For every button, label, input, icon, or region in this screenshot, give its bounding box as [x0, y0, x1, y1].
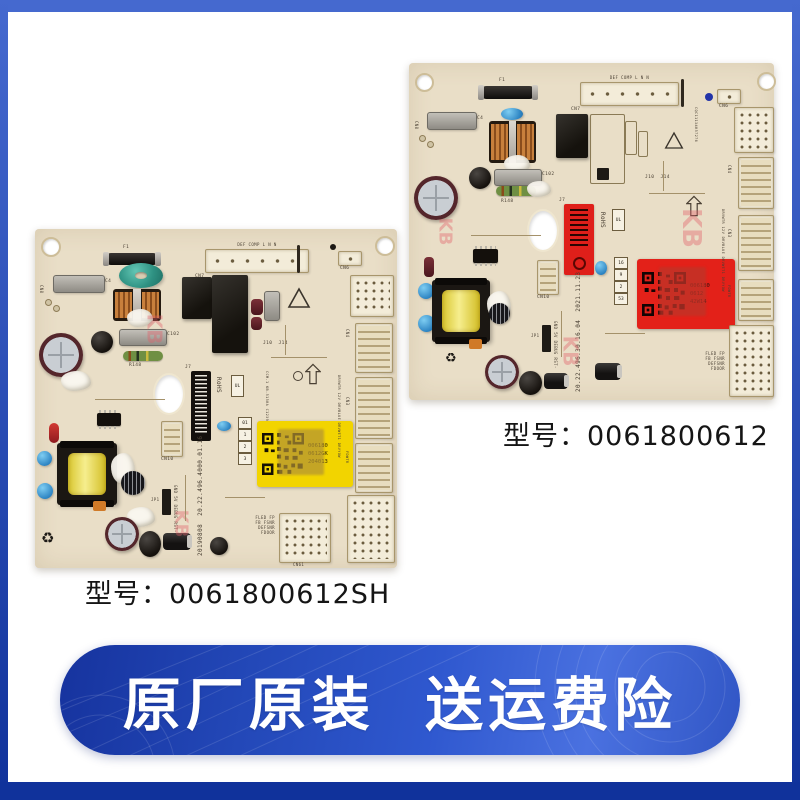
silkscreen-cn10: CN10 [161, 457, 173, 462]
silkscreen-jp1: JP1 [531, 333, 539, 338]
marking-box: 16 [614, 257, 628, 269]
marking-box: 1 [238, 429, 252, 441]
edge-connector [355, 443, 393, 493]
pcb-trace [185, 475, 186, 521]
silkscreen-r148: R148 [129, 363, 141, 368]
mounting-hole [41, 237, 61, 257]
diode [595, 363, 621, 380]
silkscreen-drv-labels: DRVWTR 12V DRVBLUE DRVWET1 DRVYOW [721, 209, 725, 273]
connector-pins [358, 446, 390, 490]
power-connector [580, 82, 679, 106]
mounting-hole [415, 73, 434, 92]
edge-connector [738, 157, 774, 209]
small-connector [338, 251, 362, 266]
component-outline [638, 131, 648, 157]
silkscreen-r148: R148 [501, 199, 513, 204]
silkscreen-debug: GND 5V DEBUG RST- [553, 321, 558, 361]
electrolytic-capacitor [489, 303, 510, 324]
pcb-trace [605, 333, 645, 334]
silkscreen-c102: C102 [542, 172, 554, 177]
model-caption-sh: 型号：0061800612SH [85, 572, 390, 611]
small-connector [717, 89, 741, 104]
silkscreen-c4: C4 [477, 116, 483, 121]
film-capacitor [264, 291, 280, 321]
silkscreen-top-pins: DEF COMP L N N [582, 75, 677, 80]
electrolytic-capacitor [121, 471, 145, 495]
capacitor [595, 261, 607, 275]
silkscreen-cn4: CN4 [727, 165, 732, 173]
connector-pins [585, 92, 674, 97]
power-resistor [123, 351, 163, 361]
display-connector [279, 513, 331, 563]
connector-pins [343, 256, 357, 261]
program-header [537, 260, 559, 295]
silkscreen-cn61: CN61 [293, 562, 304, 567]
film-capacitor [53, 275, 105, 293]
silkscreen-c4: C4 [105, 279, 111, 284]
varistor-dot [705, 93, 713, 101]
program-header [161, 421, 183, 457]
edge-connector [350, 275, 394, 317]
frame-bottom [0, 782, 800, 800]
ul-mark: UL [612, 209, 625, 231]
capacitor [210, 537, 228, 555]
banner-text: 原厂原装 送运费险 [60, 645, 740, 755]
silkscreen-drv-labels: DRVWTR 12V DRVBLUE DRVWET1 DRVYOW [337, 375, 341, 439]
transformer [57, 443, 117, 505]
warning-triangle-icon [664, 131, 684, 150]
connector-pins [738, 111, 770, 149]
pcb-trace [649, 193, 705, 194]
kb-watermark: KB [170, 510, 191, 538]
kb-watermark: KB [434, 218, 455, 246]
solder-pad [419, 135, 426, 142]
pcb-trace [271, 357, 327, 358]
silkscreen-fdwtr: FDWTR [727, 285, 731, 298]
marking-box: 53 [614, 293, 628, 305]
transformer-core [442, 290, 479, 332]
qr-blur-patch [278, 429, 324, 475]
thermistor [469, 339, 482, 349]
kb-watermark: KB [142, 314, 166, 345]
silkscreen-cn6: CN6 [719, 104, 728, 109]
recycle-icon: ♻ [445, 351, 457, 366]
frame-left [0, 0, 8, 800]
connector-pins [283, 517, 327, 559]
barcode-label [191, 371, 211, 441]
solder-pad [53, 305, 60, 312]
silkscreen-cn10: CN10 [537, 295, 549, 300]
electrolytic-capacitor [485, 355, 519, 389]
fuse [480, 86, 536, 99]
capacitor [37, 483, 53, 499]
pcb-slot [297, 245, 300, 273]
kb-watermark: KB [676, 208, 706, 248]
edge-connector [738, 215, 774, 271]
silkscreen-jp1: JP1 [151, 497, 159, 502]
silkscreen-cn4: CN4 [345, 329, 350, 337]
edge-connector [355, 377, 393, 439]
debug-header [542, 325, 551, 352]
promo-banner: 原厂原装 送运费险 [60, 645, 740, 755]
silkscreen-cn6: CN6 [340, 266, 349, 271]
marking-box: 3 [238, 453, 252, 465]
ul-mark: UL [231, 375, 244, 397]
marking-box: 9 [614, 269, 628, 281]
frame-right [792, 0, 800, 800]
capacitor [251, 317, 262, 330]
capacitor [91, 331, 113, 353]
silkscreen-rohs: RoHS [599, 212, 606, 228]
capacitor [469, 167, 491, 189]
arrow-up-icon [305, 363, 321, 385]
capacitor [501, 108, 523, 120]
capacitor [139, 531, 161, 557]
connector-pins [741, 282, 771, 318]
toroid-inductor [119, 263, 163, 288]
pcb-trace [471, 235, 541, 236]
glue-blob [527, 181, 551, 197]
marking-box: 2 [614, 281, 628, 293]
edge-connector [738, 279, 774, 321]
silkscreen-j7: J7 [559, 198, 565, 203]
pcb-trace [95, 399, 165, 400]
metal-bracket [597, 168, 609, 180]
relay [556, 114, 588, 158]
mounting-hole [375, 236, 395, 256]
silkscreen-j7: J7 [185, 365, 191, 370]
electrolytic-capacitor [414, 176, 458, 220]
component-outline [625, 121, 637, 155]
transformer-core [68, 453, 106, 495]
frame-top [0, 0, 800, 12]
qr-blur-patch [659, 267, 706, 316]
silkscreen-serial: 20190808 20.22.496.4000.01.16 [197, 451, 204, 556]
capacitor [37, 451, 52, 466]
capacitor [217, 421, 231, 431]
edge-connector [347, 495, 395, 563]
pcb-trace [225, 497, 265, 498]
silkscreen-cn7: CN7 [571, 107, 580, 112]
connector-pins [358, 326, 390, 370]
relay [182, 277, 212, 319]
connector-pins [358, 380, 390, 436]
silkscreen-f1: F1 [499, 78, 505, 83]
pcb-board-0061800612: DEF COMP L N N CN7 CN6 CQC11134057276 F1… [409, 63, 774, 400]
connector-pins [540, 263, 556, 292]
capacitor [251, 299, 263, 315]
film-capacitor [427, 112, 477, 130]
connector-pins [210, 259, 304, 264]
capacitor [519, 371, 542, 395]
pcb-slot [681, 79, 684, 107]
board-cutout [529, 211, 557, 250]
edge-connector [734, 107, 774, 153]
recycle-icon: ♻ [41, 529, 54, 547]
power-connector [205, 249, 309, 273]
connector-pins [164, 424, 180, 454]
silkscreen-fdwtr: FDWTR [345, 451, 349, 464]
thermistor [93, 501, 106, 511]
pcb-trace [285, 325, 286, 355]
relay [212, 275, 248, 353]
glue-blob [61, 371, 91, 391]
transformer [432, 280, 490, 342]
marking-box: 01 [238, 417, 252, 429]
diode [544, 373, 568, 389]
silkscreen-io-labels: FLED FP FB FSNR DEFSNR FDOOR [249, 515, 275, 535]
silkscreen-cn8: CN8 [39, 285, 44, 293]
connector-pins [351, 499, 391, 559]
marking-box: 2 [238, 441, 252, 453]
connector-pins [741, 218, 771, 268]
silkscreen-cn8: CN8 [414, 121, 419, 129]
connector-pins [733, 329, 770, 393]
component-dot [330, 244, 336, 250]
capacitor [424, 257, 434, 277]
pcb-trace [561, 311, 562, 357]
edge-connector [729, 325, 774, 397]
mounting-hole [757, 72, 776, 91]
board-cutout [155, 375, 183, 413]
ic-chip [473, 249, 498, 263]
pcb-board-0061800612sh: DEF COMP L N N CN7 CN6 F1 C4 CN8 J10 J14… [35, 229, 397, 568]
certification-ring-icon [293, 371, 303, 381]
warning-triangle-icon [287, 287, 311, 309]
model-caption: 型号：0061800612 [503, 414, 769, 453]
silkscreen-f1: F1 [123, 245, 129, 250]
connector-pins [741, 160, 771, 206]
silkscreen-jumpers: J10 J14 [645, 175, 670, 180]
electrolytic-capacitor [105, 517, 139, 551]
connector-pins [722, 94, 736, 99]
edge-connector [355, 323, 393, 373]
silkscreen-cn3: CN3 [345, 397, 350, 405]
solder-pad [45, 299, 52, 306]
silkscreen-c102: C102 [167, 332, 179, 337]
pcb-trace [663, 161, 664, 191]
capacitor [49, 423, 59, 443]
ic-chip [97, 413, 121, 426]
silkscreen-cert: CQC11134057276 [694, 107, 698, 157]
silkscreen-top-pins: DEF COMP L N N [207, 242, 307, 247]
solder-pad [427, 141, 434, 148]
red-barcode-label [564, 204, 594, 275]
silkscreen-io-labels: FLED FP FB FSNR DEFSNR FDOOR [699, 351, 725, 371]
silkscreen-cn3: CN3 [727, 229, 732, 237]
silkscreen-rohs: RoHS [215, 377, 222, 393]
connector-pins [354, 279, 390, 313]
